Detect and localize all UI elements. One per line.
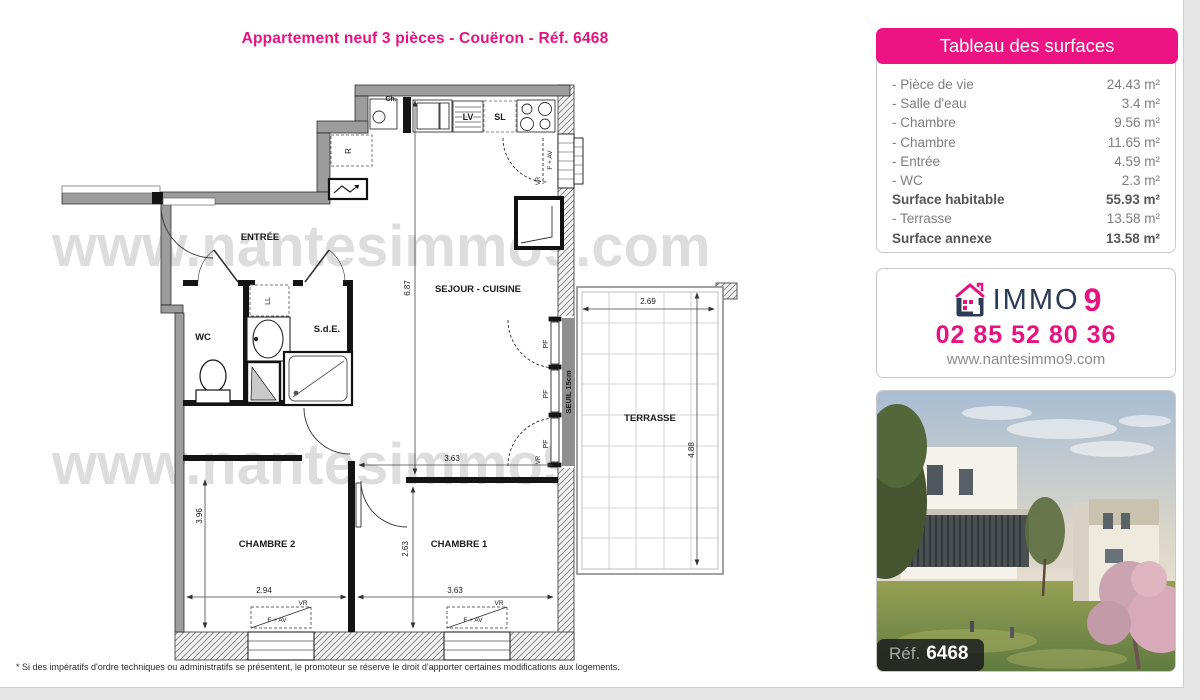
surface-row: - Pièce de vie24.43 m² xyxy=(892,75,1160,94)
washing-machine-label: LL xyxy=(265,297,272,305)
room-label-terrasse: TERRASSE xyxy=(624,413,676,424)
svg-text:3.63: 3.63 xyxy=(447,586,463,595)
room-label-sde: S.d.E. xyxy=(314,324,340,335)
bay-panels xyxy=(549,317,561,467)
agency-panel: IMMO9 02 85 52 80 36 www.nantesimmo9.com xyxy=(876,268,1176,378)
door-leaf xyxy=(356,483,361,527)
brand-9: 9 xyxy=(1084,282,1102,319)
photo-rendering xyxy=(877,391,1175,671)
vr-label-ch2: VR xyxy=(298,600,307,607)
pf-label-3: PF xyxy=(543,440,550,449)
svg-text:www.nantesimmo9.com: www.nantesimmo9.com xyxy=(51,214,711,279)
room-label-sejour: SEJOUR - CUISINE xyxy=(435,284,521,295)
ref-value: 6468 xyxy=(926,643,968,664)
vr-label-ch1: VR xyxy=(494,600,503,607)
surfaces-panel: Tableau des surfaces - Pièce de vie24.43… xyxy=(876,28,1176,253)
window-type-label: F + AV xyxy=(547,150,554,170)
pf-label-2: PF xyxy=(543,390,550,399)
surfaces-rows: - Pièce de vie24.43 m² - Salle d'eau3.4 … xyxy=(877,68,1175,255)
flyer-page: Appartement neuf 3 pièces - Couëron - Ré… xyxy=(0,0,1184,688)
room-label-wc: WC xyxy=(195,332,211,343)
threshold-label: SEUIL 15cm xyxy=(564,370,573,414)
terrace-height-dim: 4.88 xyxy=(687,442,696,458)
room-label-entree: ENTRÉE xyxy=(241,232,280,243)
property-photo: Réf.6468 xyxy=(876,390,1176,672)
surfaces-header: Tableau des surfaces xyxy=(876,28,1178,64)
svg-text:6.87: 6.87 xyxy=(403,280,412,296)
toilet xyxy=(196,360,230,403)
svg-text:2.94: 2.94 xyxy=(256,586,272,595)
terrace-width-dim: 2.69 xyxy=(640,297,656,306)
surface-row: - Chambre9.56 m² xyxy=(892,113,1160,132)
room-label-chambre2: CHAMBRE 2 xyxy=(239,539,295,550)
shower xyxy=(284,352,352,405)
brand-immo: IMMO xyxy=(993,284,1080,317)
surface-row: - Chambre11.65 m² xyxy=(892,133,1160,152)
floor-plan: www.nantesimmo9.com www.nantesimmo9.com xyxy=(0,0,760,700)
sl-label: SL xyxy=(494,112,506,122)
partitions xyxy=(183,97,558,632)
agency-phone: 02 85 52 80 36 xyxy=(877,321,1175,350)
ref-label: Réf. xyxy=(889,644,920,663)
surface-row: - WC2.3 m² xyxy=(892,171,1160,190)
disclaimer-footnote: * Si des impératifs d'ordre techniques o… xyxy=(16,662,620,672)
storage-label: R xyxy=(344,148,353,154)
fav-label-ch1: F + AV xyxy=(463,617,483,624)
svg-text:3.63: 3.63 xyxy=(444,454,460,463)
electrical-panel xyxy=(329,179,367,199)
agency-website: www.nantesimmo9.com xyxy=(877,351,1175,368)
entry-landing xyxy=(62,186,160,193)
fav-label-ch2: F + AV xyxy=(267,617,287,624)
surface-row-total-habitable: Surface habitable55.93 m² xyxy=(892,190,1160,209)
terrace: 2.69 4.88 TERRASSE xyxy=(577,287,723,574)
svg-text:2.63: 2.63 xyxy=(401,541,410,557)
shaft-window xyxy=(516,198,562,248)
ref-badge: Réf.6468 xyxy=(877,639,984,671)
svg-text:3.96: 3.96 xyxy=(195,508,204,524)
vr-label-bay: VR xyxy=(536,455,542,464)
agency-brand: IMMO9 xyxy=(877,281,1175,319)
immo9-house-icon xyxy=(951,281,989,319)
wall-stub xyxy=(152,192,163,204)
room-label-chambre1: CHAMBRE 1 xyxy=(431,539,488,550)
surface-row: - Terrasse13.58 m² xyxy=(892,209,1160,228)
technical-duct xyxy=(247,362,280,403)
surface-row: - Entrée4.59 m² xyxy=(892,152,1160,171)
boiler-label: Ch. xyxy=(385,96,396,103)
dishwasher-label: LV xyxy=(463,112,474,122)
surface-row-total-annexe: Surface annexe13.58 m² xyxy=(892,229,1160,248)
shutter-label: VR xyxy=(536,176,542,185)
kitchen-window xyxy=(558,134,583,188)
pf-label-1: PF xyxy=(543,340,550,349)
surface-row: - Salle d'eau3.4 m² xyxy=(892,94,1160,113)
